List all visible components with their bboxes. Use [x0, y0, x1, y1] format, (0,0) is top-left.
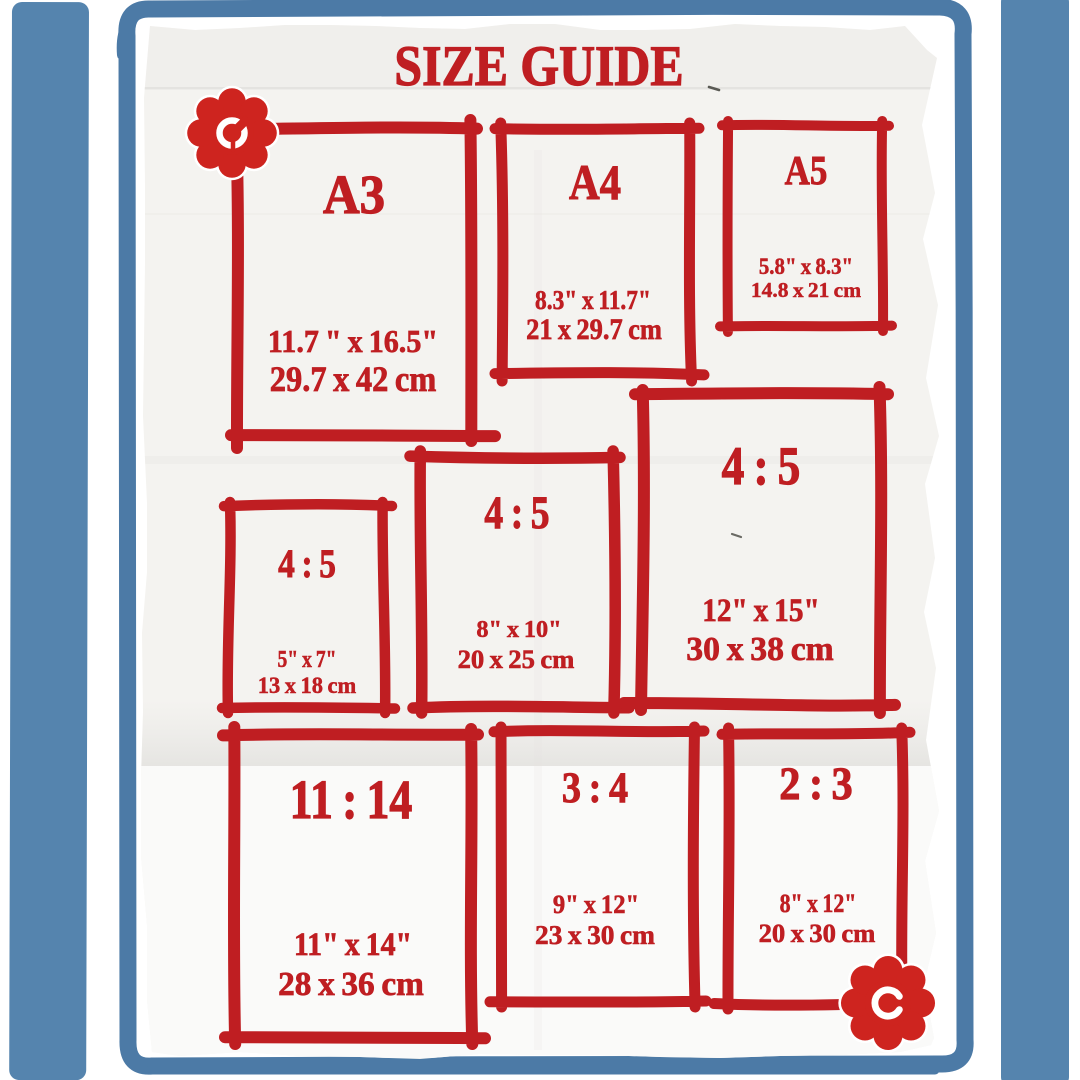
svg-text:13 x 18 cm: 13 x 18 cm [258, 673, 356, 698]
svg-text:8.3" x 11.7": 8.3" x 11.7" [535, 284, 651, 315]
svg-text:11" x 14": 11" x 14" [294, 926, 412, 962]
svg-text:30 x 38 cm: 30 x 38 cm [686, 631, 833, 668]
svg-text:5.8" x 8.3": 5.8" x 8.3" [759, 253, 853, 279]
svg-text:2 : 3: 2 : 3 [779, 758, 852, 809]
svg-text:12" x 15": 12" x 15" [702, 593, 819, 629]
svg-text:8" x 10": 8" x 10" [476, 616, 561, 643]
svg-text:9" x 12": 9" x 12" [553, 890, 639, 919]
svg-text:A3: A3 [323, 165, 385, 225]
svg-text:4 : 5: 4 : 5 [722, 436, 801, 495]
svg-text:14.8 x 21 cm: 14.8 x 21 cm [751, 278, 861, 302]
svg-text:4 : 5: 4 : 5 [484, 489, 549, 539]
svg-text:4 : 5: 4 : 5 [278, 541, 336, 585]
svg-text:SIZE GUIDE: SIZE GUIDE [394, 34, 683, 98]
svg-text:20 x 30 cm: 20 x 30 cm [759, 918, 876, 948]
svg-text:11.7 " x 16.5": 11.7 " x 16.5" [268, 324, 438, 359]
svg-text:8" x 12": 8" x 12" [780, 890, 857, 918]
svg-text:21 x 29.7 cm: 21 x 29.7 cm [526, 314, 662, 346]
svg-text:3 : 4: 3 : 4 [562, 764, 628, 812]
svg-text:A4: A4 [569, 155, 621, 210]
svg-text:11 : 14: 11 : 14 [290, 769, 413, 830]
svg-text:23 x 30 cm: 23 x 30 cm [535, 919, 655, 950]
svg-text:5" x 7": 5" x 7" [278, 645, 337, 673]
svg-text:29.7 x 42 cm: 29.7 x 42 cm [270, 361, 437, 400]
svg-text:28 x 36 cm: 28 x 36 cm [278, 966, 424, 1003]
svg-text:20 x 25 cm: 20 x 25 cm [458, 644, 575, 674]
svg-text:A5: A5 [785, 149, 828, 194]
